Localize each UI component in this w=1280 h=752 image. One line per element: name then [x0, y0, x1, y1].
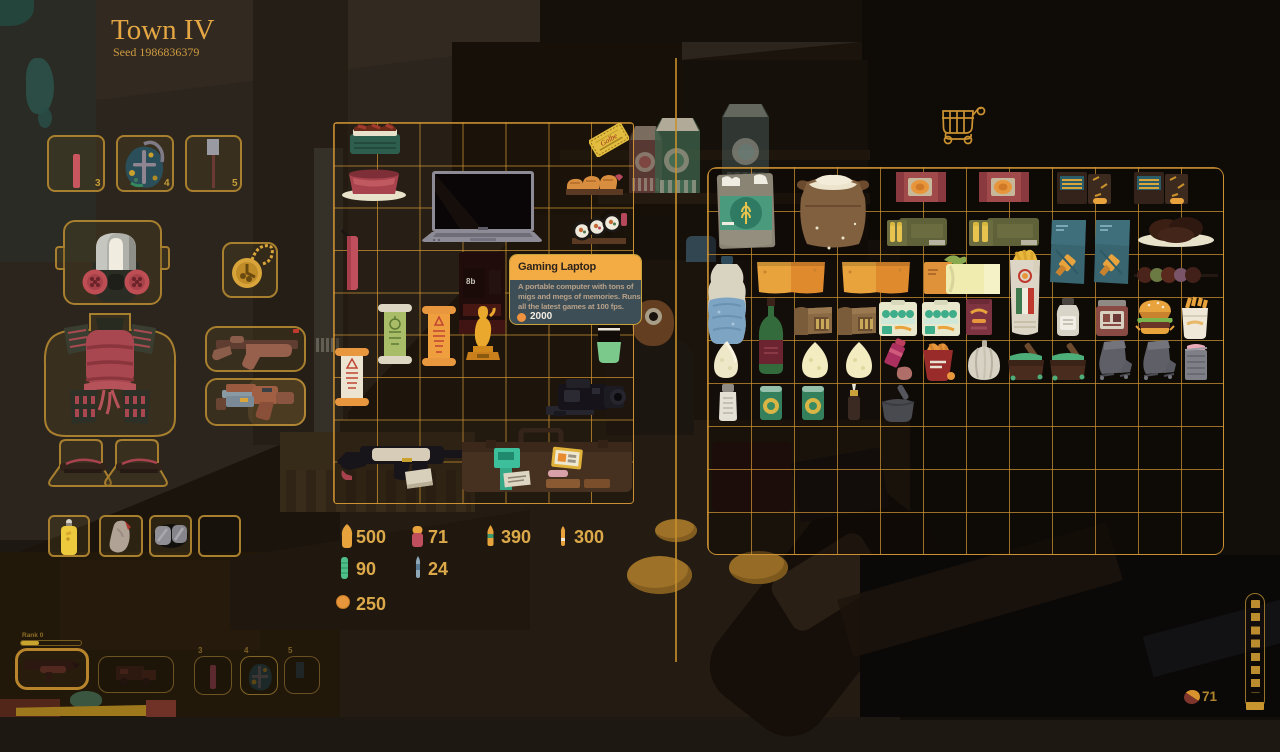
svg-text:8b: 8b — [466, 277, 475, 286]
